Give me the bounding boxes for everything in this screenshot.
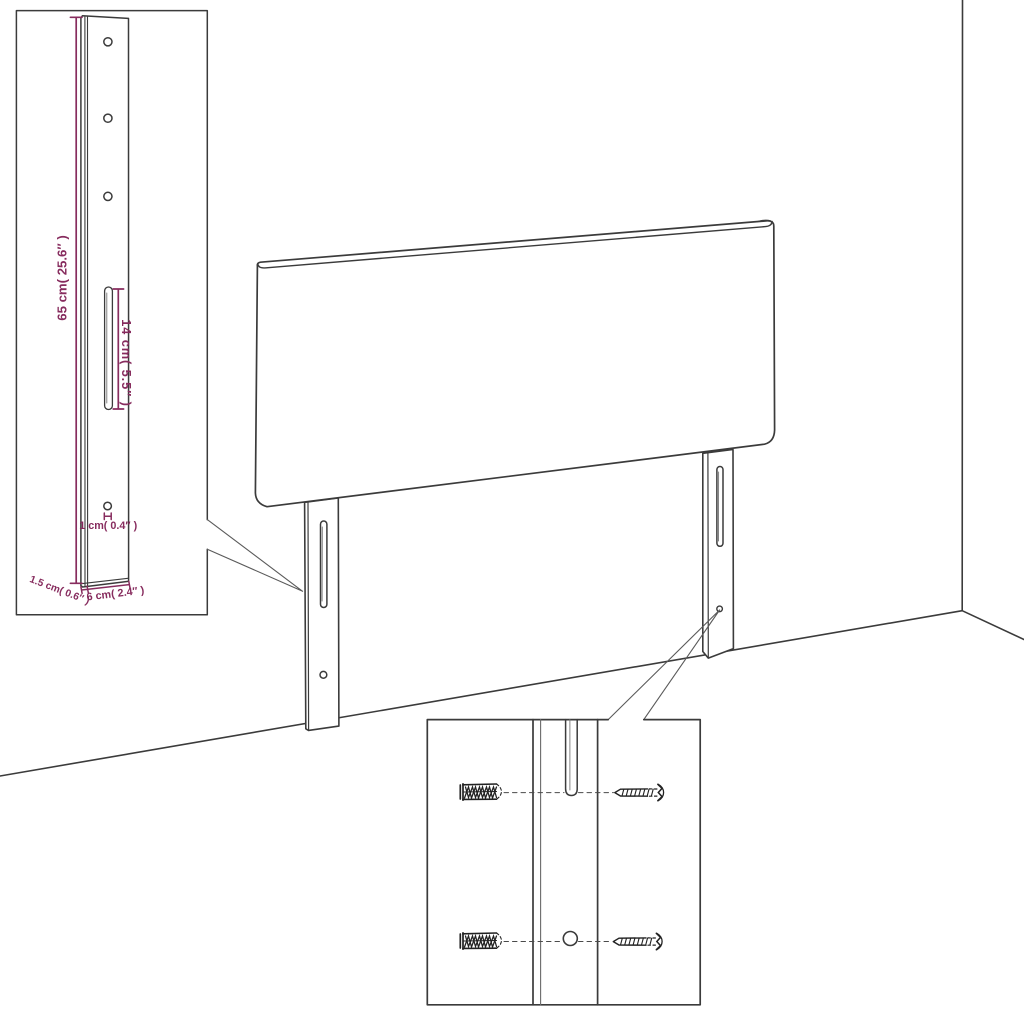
svg-text:65 cm( 25.6″ ): 65 cm( 25.6″ ) [55, 235, 70, 321]
svg-text:1 cm( 0.4″ ): 1 cm( 0.4″ ) [79, 520, 137, 532]
svg-text:14 cm( 5.5″ ): 14 cm( 5.5″ ) [119, 319, 134, 407]
